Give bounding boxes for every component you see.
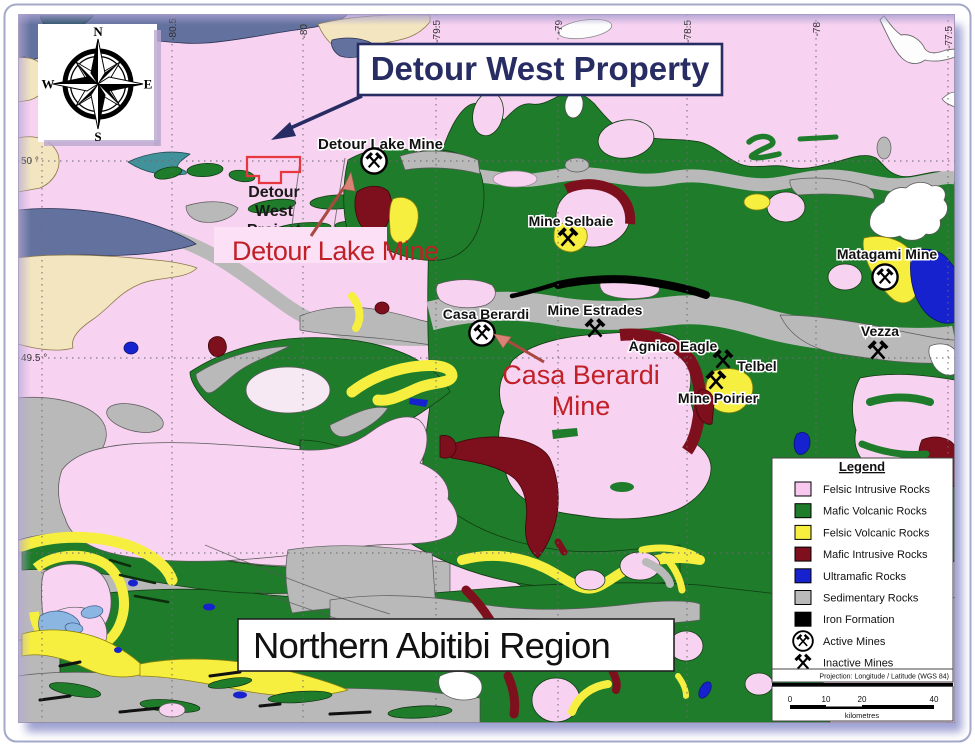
svg-text:N: N	[93, 24, 103, 39]
svg-text:Detour: Detour	[248, 184, 300, 201]
svg-text:Matagami Mine: Matagami Mine	[837, 246, 938, 262]
svg-text:Mine Poirier: Mine Poirier	[678, 390, 759, 406]
svg-text:Mine Selbaie: Mine Selbaie	[529, 213, 614, 229]
svg-text:Inactive Mines: Inactive Mines	[823, 658, 894, 670]
svg-text:Legend: Legend	[839, 459, 885, 474]
svg-text:Detour Lake Mine: Detour Lake Mine	[232, 236, 439, 266]
svg-text:20: 20	[858, 695, 867, 704]
svg-text:Projection: Longitude / Latitu: Projection: Longitude / Latitude (WGS 84…	[819, 674, 949, 681]
svg-text:Mine: Mine	[552, 391, 611, 421]
svg-text:-77.5: -77.5	[944, 26, 955, 49]
svg-text:W: W	[42, 77, 55, 92]
svg-text:-80: -80	[299, 24, 310, 39]
svg-text:Mine Estrades: Mine Estrades	[548, 302, 643, 318]
svg-text:Mafic Volcanic Rocks: Mafic Volcanic Rocks	[823, 506, 927, 518]
svg-text:West: West	[255, 203, 294, 220]
svg-text:10: 10	[822, 695, 831, 704]
svg-text:Northern Abitibi Region: Northern Abitibi Region	[253, 625, 610, 666]
svg-text:Ultramafic Rocks: Ultramafic Rocks	[823, 571, 907, 583]
svg-text:Casa Berardi: Casa Berardi	[443, 306, 529, 322]
svg-text:Agnico Eagle: Agnico Eagle	[629, 338, 718, 354]
svg-text:Felsic Intrusive Rocks: Felsic Intrusive Rocks	[823, 484, 930, 496]
svg-text:Casa Berardi: Casa Berardi	[502, 360, 660, 390]
svg-text:Felsic Volcanic Rocks: Felsic Volcanic Rocks	[823, 527, 930, 539]
svg-text:0: 0	[788, 695, 793, 704]
svg-text:E: E	[144, 77, 153, 92]
svg-text:Sedimentary Rocks: Sedimentary Rocks	[823, 593, 919, 605]
svg-text:40: 40	[930, 695, 939, 704]
svg-text:kilometres: kilometres	[845, 711, 879, 720]
svg-text:Iron Formation: Iron Formation	[823, 614, 895, 626]
svg-text:S: S	[94, 129, 101, 144]
svg-text:Active Mines: Active Mines	[823, 636, 886, 648]
svg-text:Detour West Property: Detour West Property	[371, 50, 710, 87]
svg-text:Vezza: Vezza	[861, 323, 899, 339]
svg-text:Mafic Intrusive Rocks: Mafic Intrusive Rocks	[823, 549, 928, 561]
svg-text:Telbel: Telbel	[737, 358, 776, 374]
